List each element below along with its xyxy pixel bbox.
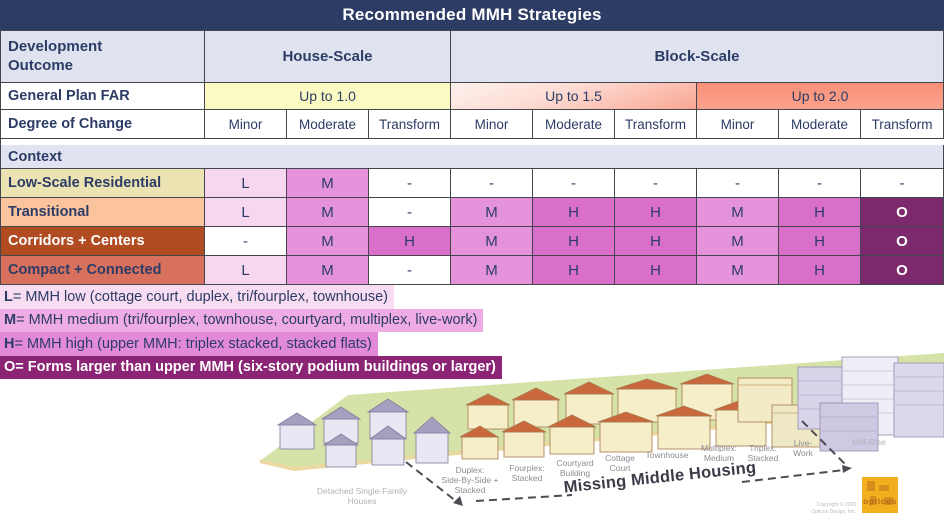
- legend-line-medium: M = MMH medium (tri/fourplex, townhouse,…: [0, 309, 944, 333]
- row-label-transitional: Transitional: [1, 198, 205, 227]
- copyright-line: Copyright © 2020: [770, 502, 856, 509]
- opticos-logo-text: opticos: [860, 496, 900, 506]
- building-label-live-work: Live- Work: [793, 438, 813, 458]
- strategy-cell: M: [287, 169, 369, 198]
- legend-key: M: [4, 312, 16, 328]
- degree-cell: Moderate: [533, 110, 615, 139]
- row-label-low-scale-residential: Low-Scale Residential: [1, 169, 205, 198]
- strategy-cell: M: [451, 256, 533, 285]
- strategy-cell: -: [369, 169, 451, 198]
- building-label-fourplex: Fourplex: Stacked: [509, 463, 544, 483]
- strategy-cell: M: [697, 198, 779, 227]
- legend-text: = MMH medium (tri/fourplex, townhouse, c…: [16, 312, 477, 328]
- header-block-scale: Block-Scale: [451, 31, 944, 83]
- strategy-cell: M: [287, 198, 369, 227]
- building-label-detached: Detached Single-Family Houses: [317, 486, 407, 506]
- legend-key: L: [4, 289, 13, 305]
- missing-middle-housing-illustration: Detached Single-Family Houses Duplex: Si…: [230, 345, 944, 526]
- degree-cell: Minor: [205, 110, 287, 139]
- strategy-cell: H: [779, 198, 861, 227]
- copyright-line: Opticos Design, Inc.: [770, 509, 856, 516]
- strategy-cell: L: [205, 169, 287, 198]
- header-house-scale: House-Scale: [205, 31, 451, 83]
- strategy-cell: H: [615, 227, 697, 256]
- degree-cell: Transform: [615, 110, 697, 139]
- copyright-notice: Copyright © 2020 Opticos Design, Inc.: [770, 502, 856, 516]
- building-label-cottage-court: Cottage Court: [605, 453, 635, 473]
- strategy-cell: H: [533, 198, 615, 227]
- strategy-cell: -: [451, 169, 533, 198]
- strategy-cell: -: [369, 256, 451, 285]
- strategy-cell: O: [861, 256, 944, 285]
- row-label-compact-connected: Compact + Connected: [1, 256, 205, 285]
- far-up-to-1-5: Up to 1.5: [451, 83, 697, 110]
- strategy-cell: M: [697, 227, 779, 256]
- strategy-cell: H: [533, 256, 615, 285]
- opticos-logo-icon: [862, 477, 898, 513]
- building-label-mid-rise: Mid-Rise: [852, 437, 886, 447]
- row-label-general-plan-far: General Plan FAR: [1, 83, 205, 110]
- strategy-cell: -: [369, 198, 451, 227]
- legend-text: = MMH low (cottage court, duplex, tri/fo…: [13, 289, 388, 305]
- strategy-cell: H: [615, 256, 697, 285]
- strategy-cell: O: [861, 198, 944, 227]
- far-up-to-2-0: Up to 2.0: [697, 83, 944, 110]
- row-label-corridors-centers: Corridors + Centers: [1, 227, 205, 256]
- degree-cell: Transform: [861, 110, 944, 139]
- row-label-degree-of-change: Degree of Change: [1, 110, 205, 139]
- mmh-strategies-table: Development Outcome House-Scale Block-Sc…: [0, 30, 944, 285]
- strategy-cell: M: [697, 256, 779, 285]
- strategy-cell: M: [287, 227, 369, 256]
- degree-cell: Minor: [451, 110, 533, 139]
- strategy-cell: H: [369, 227, 451, 256]
- strategy-cell: -: [779, 169, 861, 198]
- strategy-cell: H: [779, 256, 861, 285]
- degree-cell: Moderate: [287, 110, 369, 139]
- strategy-cell: M: [451, 198, 533, 227]
- strategy-cell: L: [205, 198, 287, 227]
- degree-cell: Moderate: [779, 110, 861, 139]
- far-up-to-1-0: Up to 1.0: [205, 83, 451, 110]
- building-label-duplex: Duplex: Side-By-Side + Stacked: [442, 465, 499, 496]
- legend-key: H: [4, 336, 14, 352]
- legend-line-low: L = MMH low (cottage court, duplex, tri/…: [0, 285, 944, 309]
- context-section-header: Context: [1, 145, 944, 169]
- strategy-cell: H: [615, 198, 697, 227]
- degree-cell: Transform: [369, 110, 451, 139]
- arrowhead-right-icon: [842, 465, 852, 473]
- page-title: Recommended MMH Strategies: [0, 0, 944, 30]
- strategy-cell: H: [533, 227, 615, 256]
- strategy-cell: H: [779, 227, 861, 256]
- strategy-cell: -: [205, 227, 287, 256]
- strategy-cell: M: [451, 227, 533, 256]
- corner-header-development-outcome: Development Outcome: [1, 31, 205, 83]
- strategy-cell: L: [205, 256, 287, 285]
- strategy-cell: -: [861, 169, 944, 198]
- strategy-cell: -: [533, 169, 615, 198]
- strategy-cell: -: [615, 169, 697, 198]
- building-label-townhouse: Townhouse: [645, 450, 688, 460]
- strategy-cell: M: [287, 256, 369, 285]
- arrowhead-left-icon: [453, 496, 463, 506]
- degree-cell: Minor: [697, 110, 779, 139]
- strategy-cell: -: [697, 169, 779, 198]
- legend-key: O: [4, 359, 15, 375]
- strategy-cell: O: [861, 227, 944, 256]
